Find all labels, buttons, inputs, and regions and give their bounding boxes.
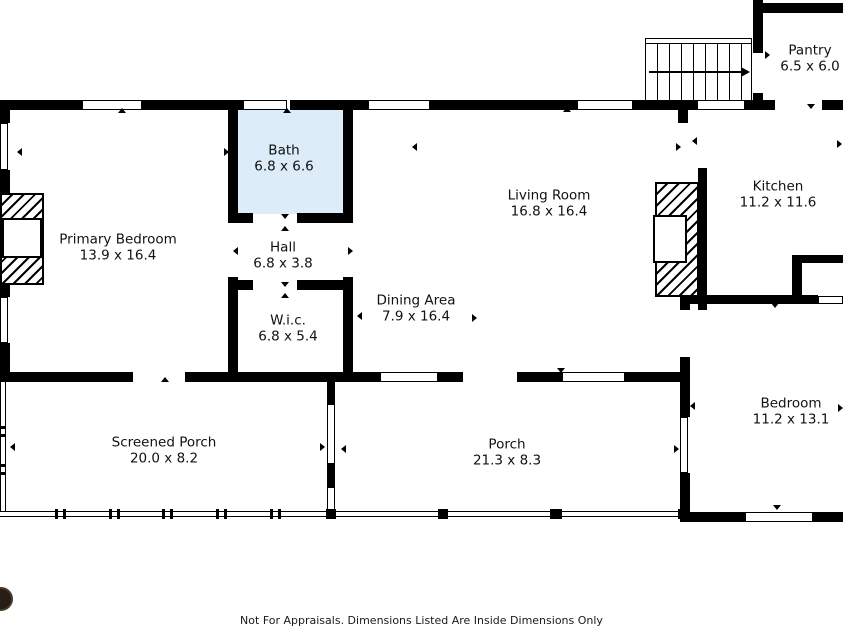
wall xyxy=(438,372,463,382)
window-marker xyxy=(0,123,8,170)
arrow-marker-icon xyxy=(773,505,781,510)
wall xyxy=(0,283,10,297)
room-name: Bedroom xyxy=(753,397,830,413)
arrow-marker-icon xyxy=(690,402,695,410)
arrow-marker-icon xyxy=(283,108,291,113)
screen-post xyxy=(63,509,66,519)
wall xyxy=(297,213,353,223)
wall xyxy=(0,372,133,382)
arrow-marker-icon xyxy=(357,312,362,320)
arrow-marker-icon xyxy=(161,377,169,382)
room-label-screened-porch: Screened Porch 20.0 x 8.2 xyxy=(112,436,217,467)
window-marker xyxy=(562,372,625,382)
arrow-marker-icon xyxy=(281,226,289,231)
screen-wall xyxy=(0,382,6,512)
arrow-marker-icon xyxy=(281,282,289,287)
screen-post xyxy=(117,509,120,519)
wall xyxy=(813,512,843,522)
wall xyxy=(0,170,10,195)
arrow-marker-icon xyxy=(837,140,842,148)
arrow-marker-icon xyxy=(233,247,238,255)
room-name: Living Room xyxy=(508,189,591,205)
wall xyxy=(142,100,243,110)
screen-post xyxy=(550,509,562,519)
room-label-wic: W.i.c. 6.8 x 5.4 xyxy=(258,314,318,345)
room-label-bath: Bath 6.8 x 6.6 xyxy=(254,144,314,175)
screen-post xyxy=(0,464,6,467)
wall xyxy=(698,168,707,310)
window-marker xyxy=(818,296,843,304)
room-dims: 7.9 x 16.4 xyxy=(377,309,456,325)
wall xyxy=(290,100,368,110)
window-marker xyxy=(0,297,8,343)
arrow-marker-icon xyxy=(17,148,22,156)
room-dims: 11.2 x 13.1 xyxy=(753,412,830,428)
screen-post xyxy=(170,509,173,519)
wall xyxy=(763,3,843,13)
room-name: W.i.c. xyxy=(258,314,318,330)
wall xyxy=(228,280,253,290)
arrow-marker-icon xyxy=(807,104,815,109)
room-name: Dining Area xyxy=(377,294,456,310)
arrow-marker-icon xyxy=(348,247,353,255)
room-name: Pantry xyxy=(780,44,840,60)
room-name: Hall xyxy=(253,241,313,257)
wall xyxy=(228,213,253,223)
room-label-bedroom: Bedroom 11.2 x 13.1 xyxy=(753,397,830,428)
arrow-marker-icon xyxy=(557,368,565,373)
arrow-marker-icon xyxy=(563,107,571,112)
wall xyxy=(297,280,353,290)
arrow-marker-icon xyxy=(674,445,679,453)
arrow-marker-icon xyxy=(676,143,681,151)
room-dims: 6.8 x 6.6 xyxy=(254,159,314,175)
wall xyxy=(753,0,763,53)
window-marker xyxy=(380,372,438,382)
arrow-marker-icon xyxy=(341,445,346,453)
screen-post xyxy=(0,472,6,475)
arrow-marker-icon xyxy=(765,51,770,59)
screen-post xyxy=(270,509,273,519)
screen-wall xyxy=(0,511,688,517)
room-dims: 21.3 x 8.3 xyxy=(473,453,541,469)
wall xyxy=(633,100,697,110)
screen-post xyxy=(438,509,448,519)
stairs-direction-arrow xyxy=(649,71,742,73)
wall xyxy=(430,100,577,110)
screen-post xyxy=(55,509,58,519)
room-label-kitchen: Kitchen 11.2 x 11.6 xyxy=(740,180,817,211)
room-dims: 6.8 x 5.4 xyxy=(258,329,318,345)
wall xyxy=(517,372,562,382)
screen-post xyxy=(327,463,335,488)
room-name: Screened Porch xyxy=(112,436,217,452)
screen-post xyxy=(326,509,336,519)
brand-logo-badge xyxy=(0,587,13,611)
room-dims: 13.9 x 16.4 xyxy=(59,248,177,264)
screen-post xyxy=(109,509,112,519)
window-marker xyxy=(680,417,688,473)
screen-post xyxy=(327,382,335,405)
room-dims: 16.8 x 16.4 xyxy=(508,204,591,220)
wall xyxy=(822,100,843,110)
room-dims: 6.5 x 6.0 xyxy=(780,59,840,75)
window-marker xyxy=(745,512,813,522)
arrow-marker-icon xyxy=(224,148,229,156)
arrow-marker-icon xyxy=(412,143,417,151)
room-name: Porch xyxy=(473,438,541,454)
wall xyxy=(745,100,775,110)
wall xyxy=(343,110,353,223)
firebox xyxy=(653,215,687,263)
wall xyxy=(792,255,843,263)
screen-post xyxy=(0,434,6,437)
room-label-dining-area: Dining Area 7.9 x 16.4 xyxy=(377,294,456,325)
room-label-living-room: Living Room 16.8 x 16.4 xyxy=(508,189,591,220)
room-label-pantry: Pantry 6.5 x 6.0 xyxy=(780,44,840,75)
wall xyxy=(343,290,353,382)
arrow-marker-icon xyxy=(472,314,477,322)
stairs-arrowhead-icon xyxy=(741,67,750,77)
arrow-marker-icon xyxy=(118,108,126,113)
disclaimer-text: Not For Appraisals. Dimensions Listed Ar… xyxy=(0,614,843,627)
room-dims: 6.8 x 3.8 xyxy=(253,256,313,272)
room-label-porch: Porch 21.3 x 8.3 xyxy=(473,438,541,469)
window-marker xyxy=(697,100,745,110)
wall xyxy=(228,290,238,382)
room-dims: 11.2 x 11.6 xyxy=(740,195,817,211)
wall xyxy=(753,93,763,101)
arrow-marker-icon xyxy=(10,443,15,451)
arrow-marker-icon xyxy=(771,303,779,308)
arrow-marker-icon xyxy=(281,293,289,298)
room-name: Bath xyxy=(254,144,314,160)
arrow-marker-icon xyxy=(692,137,697,145)
screen-post xyxy=(0,426,6,429)
screen-post xyxy=(162,509,165,519)
wall xyxy=(0,110,10,123)
firebox xyxy=(2,218,42,258)
room-label-primary-bedroom: Primary Bedroom 13.9 x 16.4 xyxy=(59,233,177,264)
wall xyxy=(680,512,745,522)
room-dims: 20.0 x 8.2 xyxy=(112,451,217,467)
room-name: Primary Bedroom xyxy=(59,233,177,249)
floor-plan-canvas: Primary Bedroom 13.9 x 16.4 Bath 6.8 x 6… xyxy=(0,0,843,632)
window-marker xyxy=(243,100,287,110)
screen-post xyxy=(278,509,281,519)
arrow-marker-icon xyxy=(838,404,843,412)
wall xyxy=(678,110,688,123)
screen-post xyxy=(678,509,688,519)
wall xyxy=(0,100,82,110)
screen-post xyxy=(224,509,227,519)
wall xyxy=(228,110,238,223)
window-marker xyxy=(368,100,430,110)
screen-post xyxy=(216,509,219,519)
wall xyxy=(680,295,690,310)
window-marker xyxy=(82,100,142,110)
arrow-marker-icon xyxy=(320,443,325,451)
arrow-marker-icon xyxy=(281,214,289,219)
window-marker xyxy=(577,100,633,110)
wall xyxy=(680,357,690,417)
room-label-hall: Hall 6.8 x 3.8 xyxy=(253,241,313,272)
room-name: Kitchen xyxy=(740,180,817,196)
